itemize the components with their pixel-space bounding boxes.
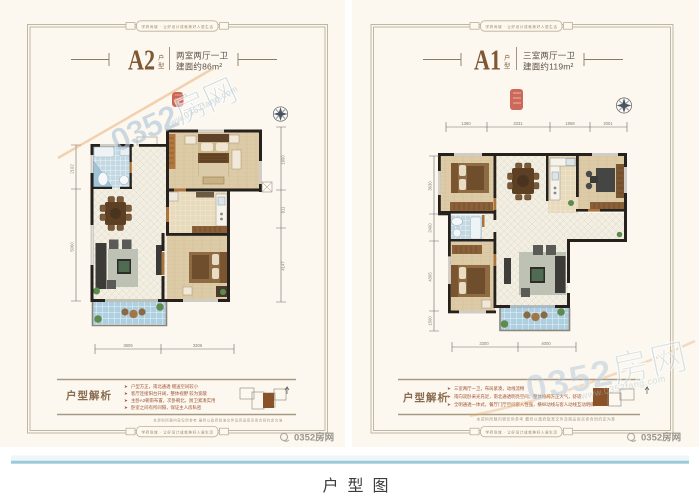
svg-text:本资料所载内容仅供参考 最终以政府批准文件及商品房买卖合同约: 本资料所载内容仅供参考 最终以政府批准文件及商品房买卖合同约定为准 <box>476 417 615 422</box>
svg-text:学府尚城 · 让好设计成就美好人居生活: 学府尚城 · 让好设计成就美好人居生活 <box>141 24 213 29</box>
svg-text:2400: 2400 <box>428 223 433 233</box>
svg-text:户: 户 <box>504 54 510 62</box>
svg-text:户: 户 <box>158 54 164 62</box>
svg-text:➤: ➤ <box>447 386 451 391</box>
svg-text:户型图: 户型图 <box>322 477 397 495</box>
svg-text:三室两厅一卫，布局紧凑，动线流畅: 三室两厅一卫，布局紧凑，动线流畅 <box>454 385 525 392</box>
svg-text:1380: 1380 <box>461 121 471 126</box>
svg-text:卧室之间有所间隔，保证主人房私密: 卧室之间有所间隔，保证主人房私密 <box>131 404 202 411</box>
svg-text:户型解析: 户型解析 <box>65 389 112 402</box>
svg-text:型: 型 <box>158 62 164 70</box>
svg-text:户型解析: 户型解析 <box>402 391 449 404</box>
svg-text:2001: 2001 <box>603 121 613 126</box>
svg-text:型: 型 <box>504 62 510 70</box>
svg-text:建面约86m²: 建面约86m² <box>176 62 222 72</box>
svg-text:建面约119m²: 建面约119m² <box>523 62 574 72</box>
svg-text:1900: 1900 <box>281 155 286 165</box>
svg-text:4147: 4147 <box>281 261 286 271</box>
svg-text:911: 911 <box>281 206 286 213</box>
svg-text:➤: ➤ <box>124 384 128 389</box>
svg-text:1500: 1500 <box>428 316 433 326</box>
svg-text:➤: ➤ <box>124 398 128 403</box>
svg-text:三室两厅一卫: 三室两厅一卫 <box>523 51 576 61</box>
svg-text:➤: ➤ <box>447 402 451 407</box>
svg-text:➤: ➤ <box>124 391 128 396</box>
svg-text:主卧A2朝南布置，次卧朝北，厨卫紧凑实用: 主卧A2朝南布置，次卧朝北，厨卫紧凑实用 <box>131 397 215 404</box>
svg-text:A1: A1 <box>474 45 501 77</box>
svg-text:➤: ➤ <box>447 394 451 399</box>
svg-text:1958: 1958 <box>565 121 575 126</box>
svg-text:5060: 5060 <box>70 242 75 252</box>
svg-text:本资料所载内容仅供参考 最终以政府批准文件及商品房买卖合同约: 本资料所载内容仅供参考 最终以政府批准文件及商品房买卖合同约定为准 <box>153 418 282 423</box>
svg-text:3630: 3630 <box>428 181 433 191</box>
svg-text:4305: 4305 <box>428 272 433 282</box>
svg-text:0352房网: 0352房网 <box>294 432 334 444</box>
svg-text:3331: 3331 <box>513 121 523 126</box>
svg-text:3306: 3306 <box>193 343 203 348</box>
svg-text:户型方正，南北通透 赠送空间较小: 户型方正，南北通透 赠送空间较小 <box>131 383 199 390</box>
svg-text:A2: A2 <box>128 45 155 77</box>
svg-text:学府尚城 · 让好设计成就美好人居生活: 学府尚城 · 让好设计成就美好人居生活 <box>485 430 557 435</box>
svg-text:3806: 3806 <box>123 343 133 348</box>
svg-text:0352房网: 0352房网 <box>641 432 681 444</box>
svg-text:3300: 3300 <box>479 341 489 346</box>
svg-text:2102: 2102 <box>70 164 75 174</box>
svg-text:客厅连接阳台开阔，整体视野 较为宽敞: 客厅连接阳台开阔，整体视野 较为宽敞 <box>131 390 207 397</box>
svg-text:学府尚城 · 让好设计成就美好人居生活: 学府尚城 · 让好设计成就美好人居生活 <box>141 430 213 435</box>
svg-text:4000: 4000 <box>541 341 551 346</box>
svg-text:学府尚城 · 让好设计成就美好人居生活: 学府尚城 · 让好设计成就美好人居生活 <box>485 24 557 29</box>
svg-text:➤: ➤ <box>124 405 128 410</box>
svg-text:两室两厅一卫: 两室两厅一卫 <box>176 51 229 61</box>
